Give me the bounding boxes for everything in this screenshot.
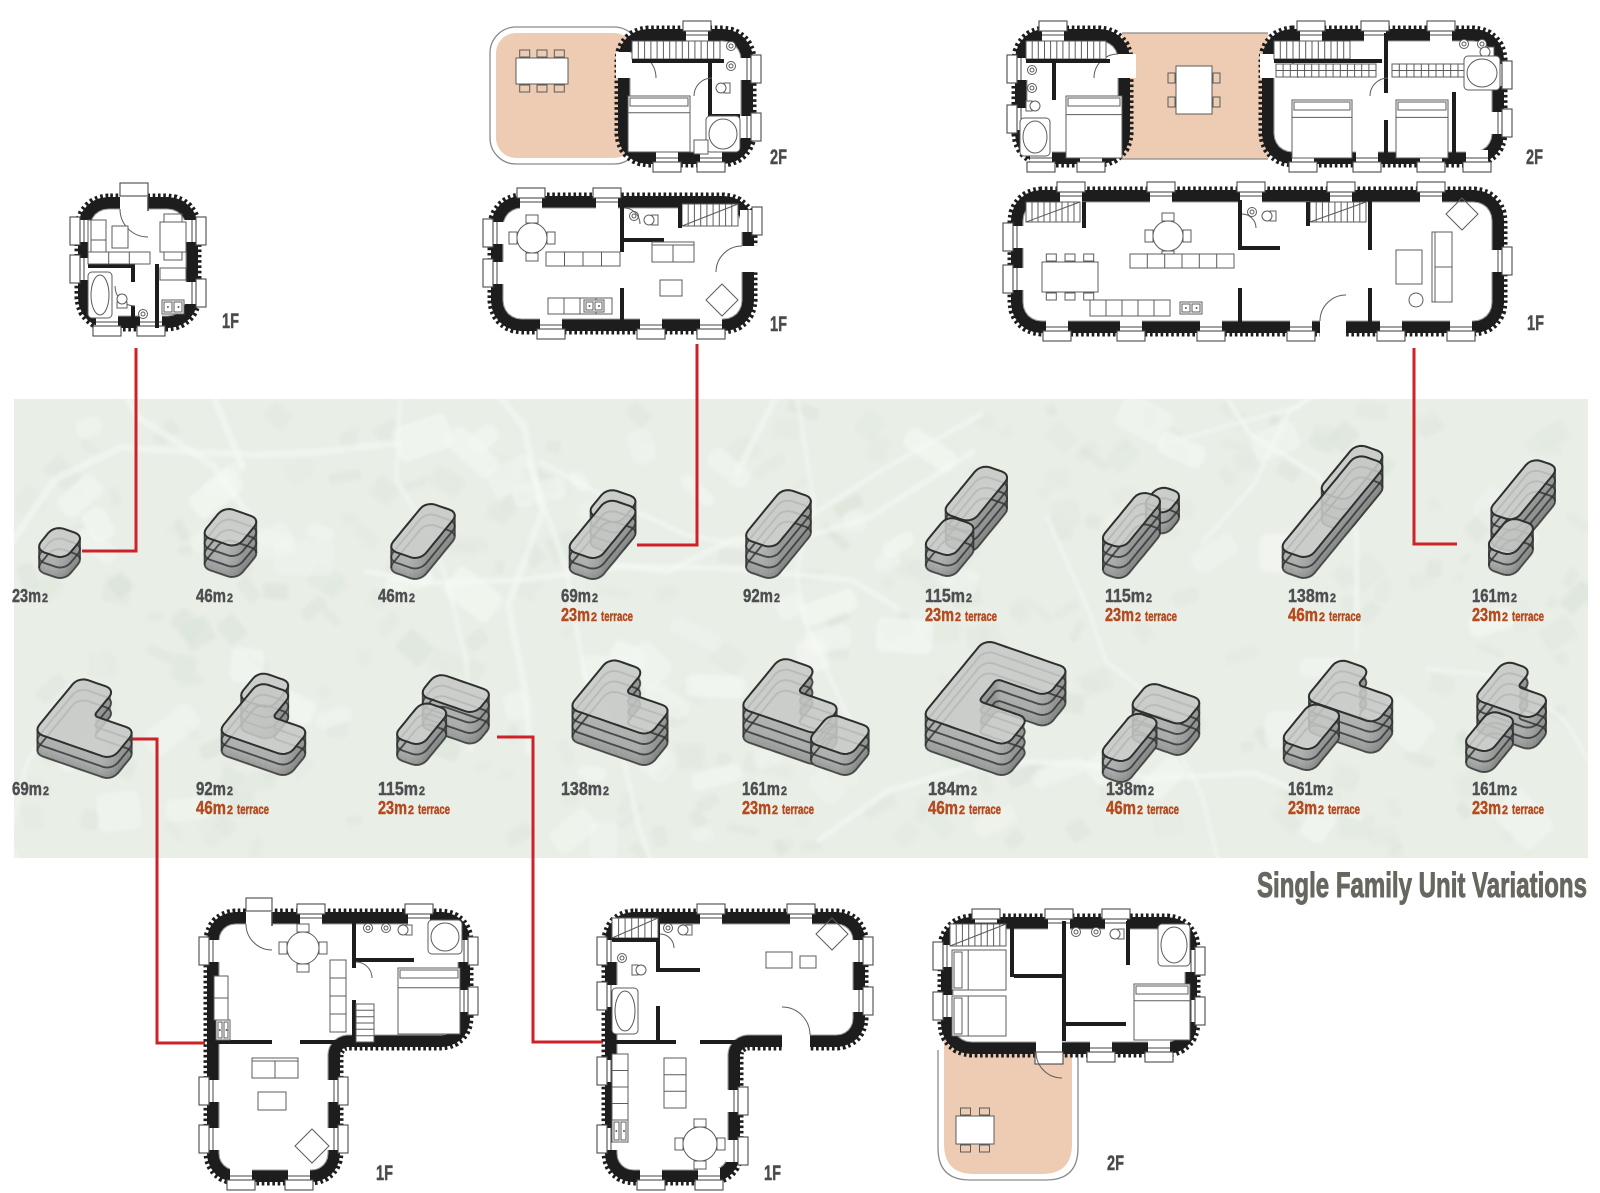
- svg-text:2: 2: [1137, 805, 1143, 817]
- svg-text:69m: 69m: [561, 586, 591, 606]
- svg-text:46m: 46m: [928, 798, 958, 818]
- svg-text:46m: 46m: [1106, 798, 1136, 818]
- svg-text:138m: 138m: [1106, 779, 1147, 799]
- svg-text:46m: 46m: [196, 798, 226, 818]
- svg-text:terrace: terrace: [1147, 802, 1179, 817]
- svg-text:161m: 161m: [1472, 586, 1510, 606]
- svg-text:23m: 23m: [1288, 798, 1317, 818]
- svg-text:terrace: terrace: [1145, 609, 1177, 624]
- svg-text:Single Family Unit Variations: Single Family Unit Variations: [1257, 866, 1587, 905]
- svg-text:115m: 115m: [1105, 586, 1145, 606]
- svg-text:2: 2: [43, 786, 49, 798]
- svg-text:2: 2: [1319, 612, 1325, 624]
- svg-text:2F: 2F: [1107, 1152, 1124, 1175]
- svg-text:69m: 69m: [12, 779, 42, 799]
- svg-text:terrace: terrace: [1328, 802, 1360, 817]
- svg-text:2: 2: [603, 786, 609, 798]
- svg-text:2: 2: [781, 786, 787, 798]
- svg-text:2: 2: [966, 593, 972, 605]
- svg-text:2: 2: [227, 786, 233, 798]
- svg-text:1F: 1F: [1527, 312, 1544, 335]
- svg-text:2: 2: [227, 805, 233, 817]
- svg-text:161m: 161m: [1288, 779, 1326, 799]
- svg-text:2: 2: [772, 805, 778, 817]
- svg-text:2: 2: [592, 593, 598, 605]
- svg-text:23m: 23m: [742, 798, 771, 818]
- svg-text:2: 2: [591, 612, 597, 624]
- svg-text:2F: 2F: [770, 146, 787, 169]
- svg-text:2: 2: [408, 805, 414, 817]
- svg-text:115m: 115m: [925, 586, 965, 606]
- svg-text:terrace: terrace: [1512, 802, 1544, 817]
- svg-text:46m: 46m: [1288, 605, 1318, 625]
- svg-text:1F: 1F: [376, 1162, 393, 1185]
- svg-text:2F: 2F: [1526, 146, 1543, 169]
- svg-text:138m: 138m: [1288, 586, 1329, 606]
- svg-text:23m: 23m: [1472, 605, 1501, 625]
- svg-text:terrace: terrace: [1329, 609, 1361, 624]
- svg-text:2: 2: [409, 593, 415, 605]
- svg-text:46m: 46m: [378, 586, 408, 606]
- svg-text:2: 2: [42, 593, 48, 605]
- svg-text:161m: 161m: [742, 779, 780, 799]
- svg-text:terrace: terrace: [969, 802, 1001, 817]
- svg-text:2: 2: [1135, 612, 1141, 624]
- svg-text:23m: 23m: [12, 586, 41, 606]
- svg-text:2: 2: [1330, 593, 1336, 605]
- svg-text:184m: 184m: [928, 779, 970, 799]
- svg-text:terrace: terrace: [1512, 609, 1544, 624]
- svg-text:2: 2: [955, 612, 961, 624]
- svg-text:2: 2: [1318, 805, 1324, 817]
- svg-text:1F: 1F: [770, 313, 787, 336]
- svg-text:23m: 23m: [378, 798, 407, 818]
- svg-text:2: 2: [1502, 805, 1508, 817]
- svg-text:2: 2: [1146, 593, 1152, 605]
- svg-text:1F: 1F: [222, 310, 239, 333]
- svg-text:2: 2: [959, 805, 965, 817]
- svg-text:23m: 23m: [925, 605, 954, 625]
- svg-text:terrace: terrace: [601, 609, 633, 624]
- svg-text:2: 2: [227, 593, 233, 605]
- svg-text:2: 2: [1511, 593, 1517, 605]
- svg-text:92m: 92m: [196, 779, 226, 799]
- svg-text:161m: 161m: [1472, 779, 1510, 799]
- svg-text:23m: 23m: [1105, 605, 1134, 625]
- svg-text:23m: 23m: [1472, 798, 1501, 818]
- svg-text:2: 2: [1327, 786, 1333, 798]
- svg-text:92m: 92m: [743, 586, 773, 606]
- svg-text:terrace: terrace: [418, 802, 450, 817]
- svg-text:terrace: terrace: [965, 609, 997, 624]
- svg-text:2: 2: [1502, 612, 1508, 624]
- svg-text:1F: 1F: [764, 1162, 781, 1185]
- svg-text:115m: 115m: [378, 779, 418, 799]
- svg-text:2: 2: [774, 593, 780, 605]
- svg-text:terrace: terrace: [782, 802, 814, 817]
- svg-text:23m: 23m: [561, 605, 590, 625]
- svg-text:138m: 138m: [561, 779, 602, 799]
- svg-text:46m: 46m: [196, 586, 226, 606]
- svg-text:2: 2: [1148, 786, 1154, 798]
- svg-text:2: 2: [971, 786, 977, 798]
- svg-text:2: 2: [419, 786, 425, 798]
- svg-text:2: 2: [1511, 786, 1517, 798]
- svg-text:terrace: terrace: [237, 802, 269, 817]
